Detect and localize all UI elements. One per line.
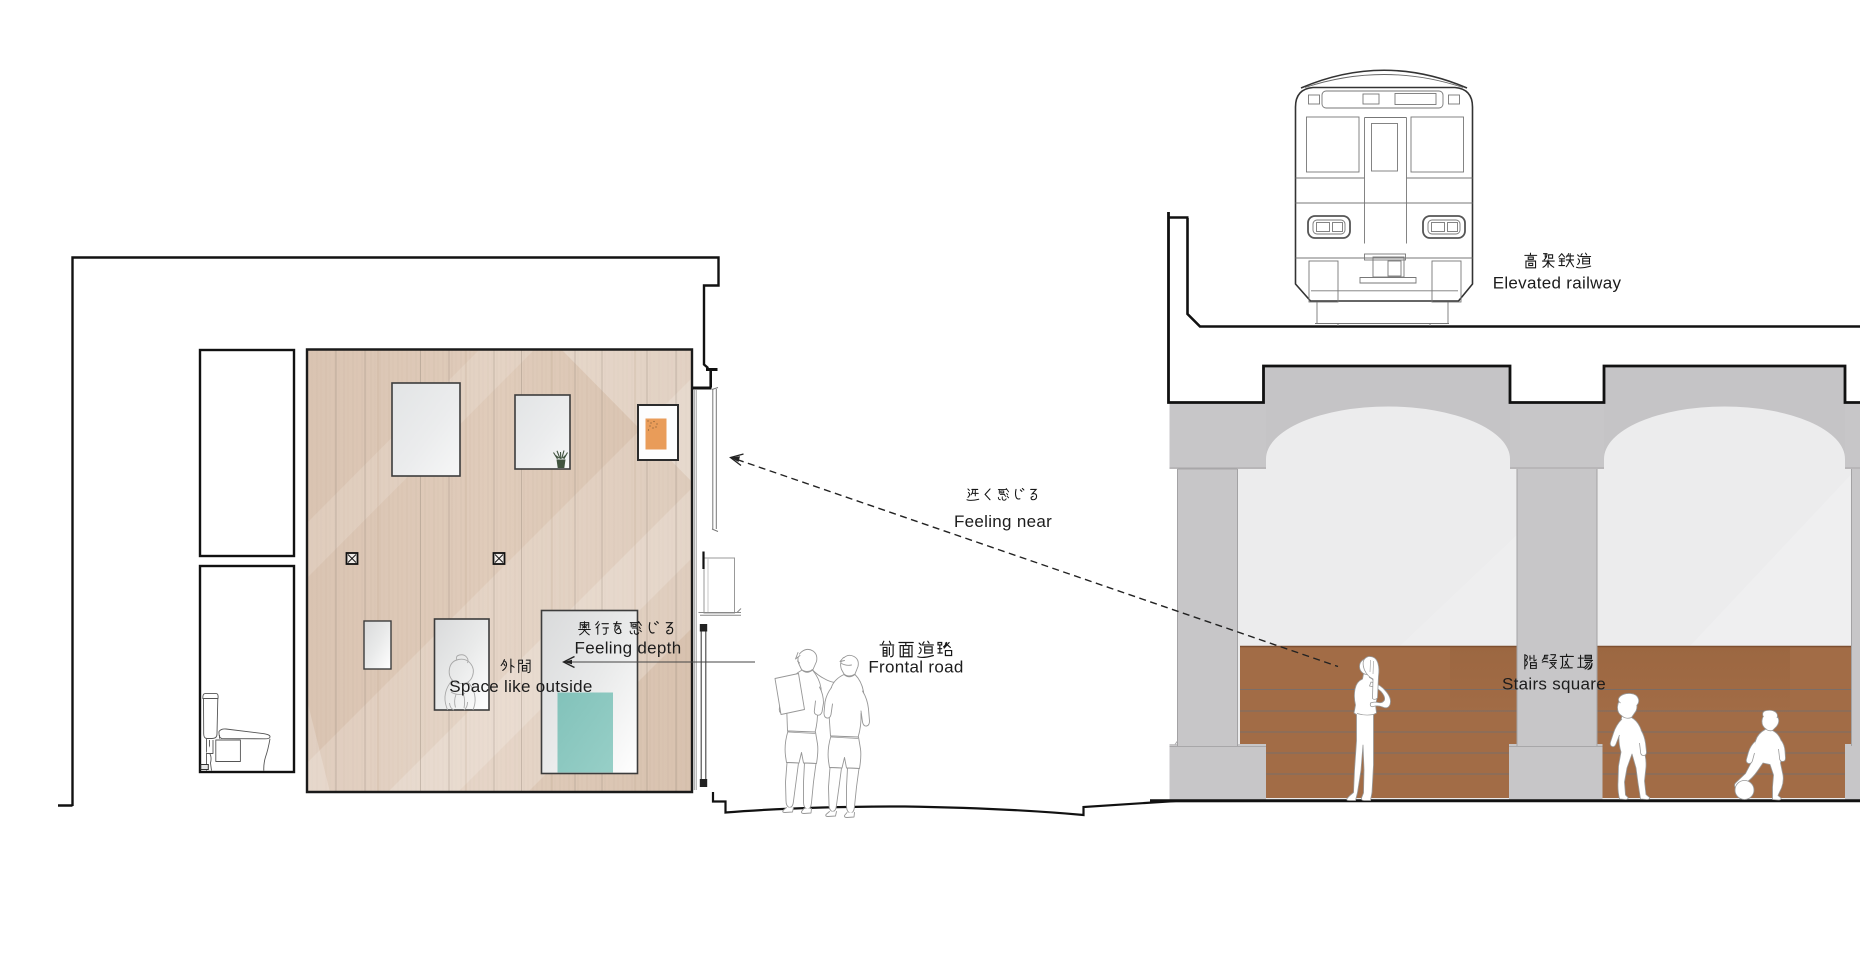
svg-text:Feeling near: Feeling near <box>954 512 1052 531</box>
svg-text:Space like outside: Space like outside <box>449 677 592 696</box>
svg-text:Frontal road: Frontal road <box>868 658 963 677</box>
svg-text:Elevated railway: Elevated railway <box>1493 274 1622 293</box>
svg-text:Stairs square: Stairs square <box>1502 675 1606 694</box>
svg-text:Feeling depth: Feeling depth <box>575 639 682 658</box>
